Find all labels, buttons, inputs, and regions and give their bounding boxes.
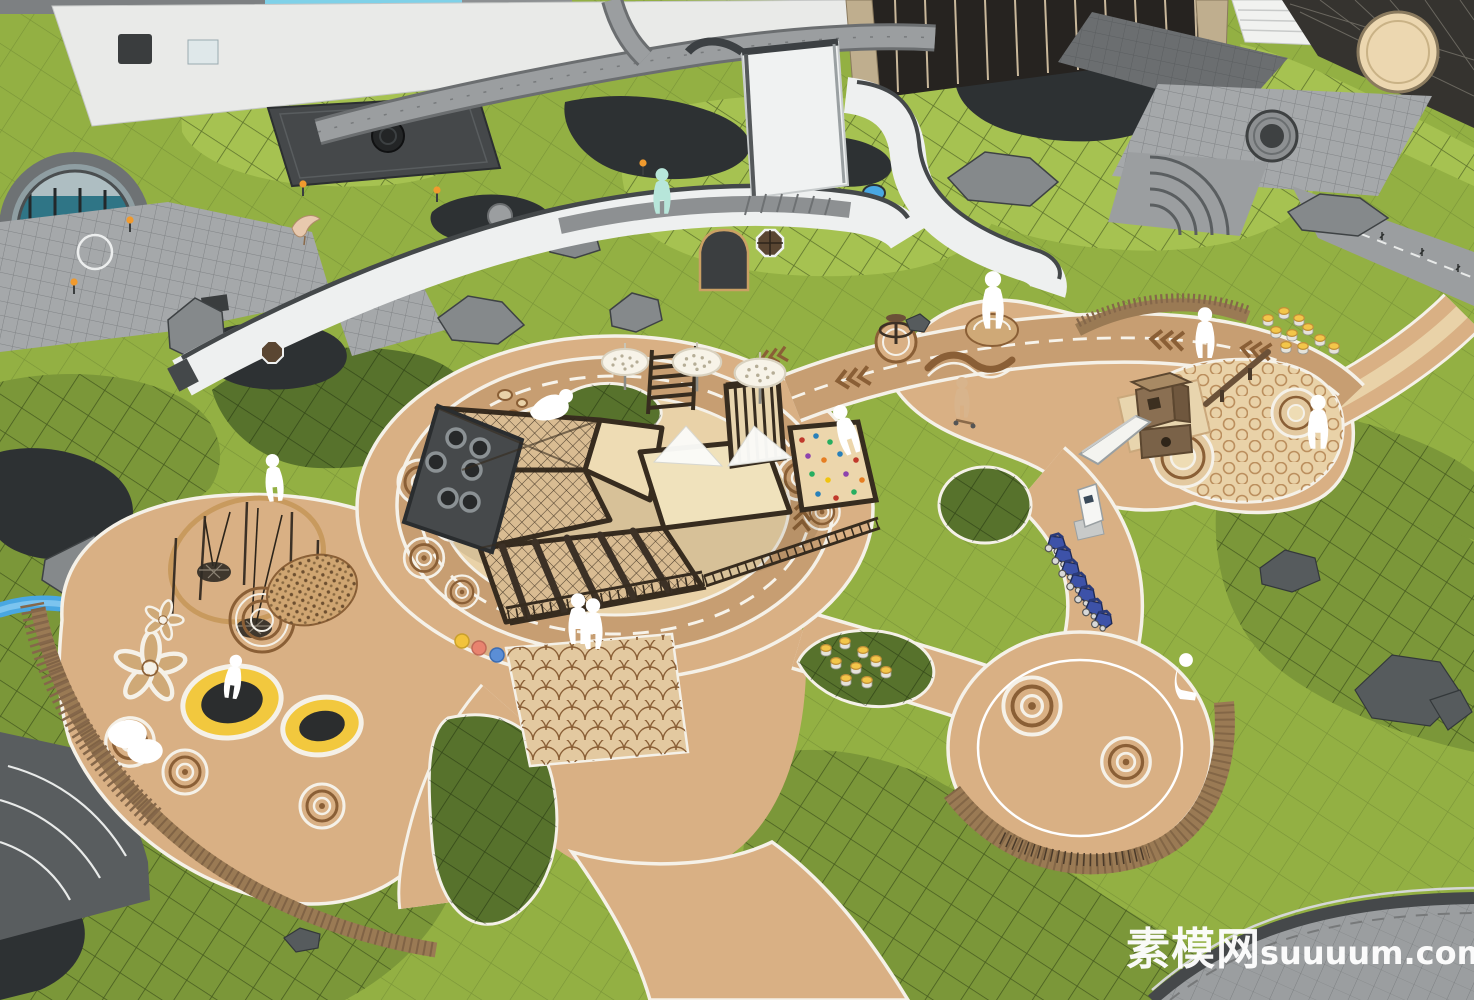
- moon-disc: [1358, 12, 1438, 92]
- play-mound: [966, 314, 1018, 346]
- arc-paving: [1108, 152, 1268, 236]
- fan-paving: [506, 634, 688, 766]
- wall-window: [757, 230, 783, 256]
- landscape-render: 素模网 suuuum.com: [0, 0, 1474, 1000]
- rock-climbing-wall: [790, 422, 876, 510]
- wall-feature-panel: [742, 42, 848, 198]
- wall-window-left: [261, 341, 283, 363]
- watermark-en: suuuum.com: [1260, 934, 1474, 972]
- watermark-cn: 素模网: [1126, 924, 1261, 975]
- building-window-dark: [118, 34, 152, 64]
- wall-door: [700, 230, 748, 290]
- building-window: [188, 40, 218, 64]
